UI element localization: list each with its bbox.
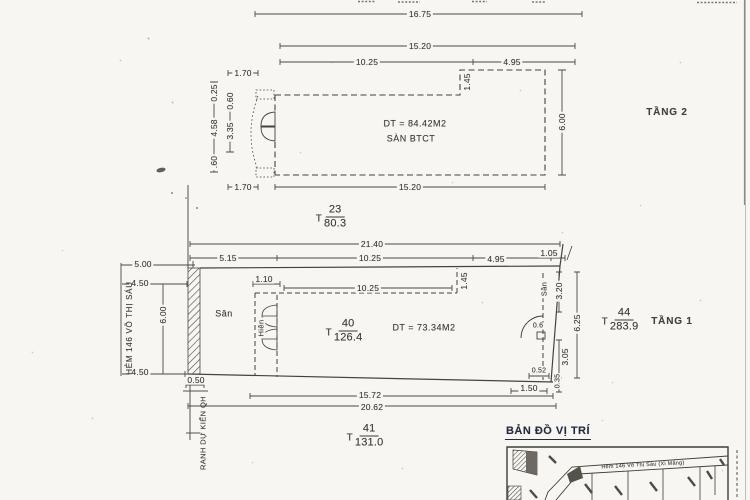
dim-0-6: 0.6 [532, 323, 544, 330]
dim-20-62: 20.62 [359, 403, 385, 412]
yard-right-label: Sân [540, 280, 548, 299]
dim-15-20-top: 15.20 [407, 42, 433, 51]
planned-boundary-label: RANH DỰ KIẾN QH [199, 396, 207, 470]
parcel-44-prefix: T [602, 318, 608, 328]
dim-5-00: 5.00 [132, 260, 153, 269]
dim-0-25: 0.25 [210, 82, 219, 103]
floor2-dim-lines [210, 11, 582, 190]
dim-3-20: 3.20 [555, 280, 564, 301]
dim-6-00-f2: 6.00 [558, 111, 567, 132]
dim-10-25-inner: 10.25 [355, 284, 381, 293]
dim-15-72: 15.72 [357, 391, 383, 400]
dim-0-50: 0.50 [185, 376, 206, 385]
location-map-title: BẢN ĐỒ VỊ TRÍ [505, 426, 591, 440]
floor2-door-swing-icon [261, 112, 275, 141]
dim-6-25: 6.25 [573, 312, 582, 333]
dim-15-20-bot: 15.20 [397, 183, 423, 192]
dim-4-95-f2: 4.95 [501, 58, 522, 67]
parcel-23-label: T 23 80.3 [316, 205, 347, 230]
parcel-44-number: 44 [615, 308, 634, 321]
dim-0-35: 0.35 [555, 373, 562, 389]
parcel-44-area: 283.9 [610, 321, 639, 333]
parcel-40-label: T 40 126.4 [326, 319, 363, 344]
cropped-text-marks [358, 2, 737, 3]
floor2-area-label: DT = 84.42M2 [383, 120, 446, 129]
survey-drawing-sheet: 16.75 15.20 10.25 4.95 1.70 1.45 6.00 0.… [0, 0, 750, 500]
floor1-outline [188, 244, 572, 382]
parcel-23-number: 23 [326, 205, 345, 218]
dim-3-35: 3.35 [226, 120, 235, 141]
parcel-40-prefix: T [326, 329, 332, 339]
dim-1-70-bot: 1.70 [232, 183, 253, 192]
dim-5-15: 5.15 [217, 254, 238, 263]
porch-label: Hiên [257, 317, 265, 338]
dim-21-40: 21.40 [359, 240, 385, 249]
parcel-40-area: 126.4 [334, 332, 363, 344]
location-map [507, 447, 737, 500]
dim-3-05: 3.05 [561, 346, 570, 367]
parcel-41-label: T 41 131.0 [347, 424, 384, 449]
floor1-title: TẦNG 1 [649, 317, 694, 327]
dim-4-95-f1: 4.95 [485, 255, 506, 264]
floor1-street-wall-hatch [188, 268, 200, 374]
parcel-23-prefix: T [316, 215, 322, 225]
parcel-44-label: T 44 283.9 [602, 308, 639, 333]
dim-4-58: 4.58 [210, 117, 219, 138]
parcel-40-number: 40 [339, 319, 358, 332]
dim-1-70-top: 1.70 [232, 69, 253, 78]
dim-16-75: 16.75 [407, 10, 433, 19]
parcel-23-area: 80.3 [324, 218, 346, 230]
dim-1-10: 1.10 [253, 275, 274, 284]
dim-10-25-f2: 10.25 [354, 58, 380, 67]
yard-left-label: Sân [215, 310, 233, 319]
parcel-41-area: 131.0 [355, 437, 384, 449]
dim-1-05: 1.05 [538, 249, 559, 258]
dim-0-60-b: .60 [210, 154, 219, 170]
dim-1-45-f1: 1.45 [460, 270, 469, 291]
dim-6-00-f1: 6.00 [159, 304, 168, 325]
floor1-area-label: DT = 73.34M2 [392, 324, 455, 333]
dim-0-60: 0.60 [226, 90, 235, 111]
scan-edge-lines [745, 0, 746, 500]
dim-1-50: 1.50 [518, 384, 539, 393]
parcel-41-prefix: T [347, 434, 353, 444]
dim-1-45-f2: 1.45 [463, 71, 472, 92]
floor2-slab-label: SÀN BTCT [387, 135, 436, 144]
dim-10-25-f1: 10.25 [357, 254, 383, 263]
floor2-title: TẦNG 2 [644, 108, 689, 118]
street-label: HẺM 146 VÕ THỊ SÁU [126, 281, 134, 374]
dim-0-52: 0.52 [531, 368, 547, 375]
parcel-41-number: 41 [360, 424, 379, 437]
scan-smudge [156, 167, 198, 209]
